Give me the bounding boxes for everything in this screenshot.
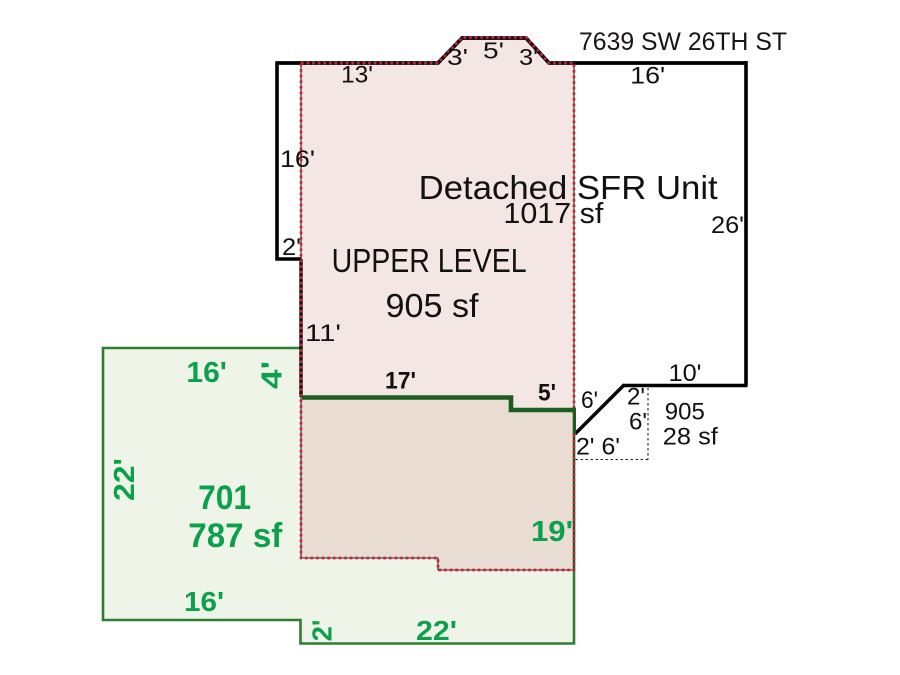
svg-text:2': 2' (282, 234, 301, 261)
svg-text:10': 10' (669, 360, 702, 387)
svg-text:16': 16' (186, 357, 227, 389)
svg-text:16': 16' (184, 586, 224, 617)
svg-text:17': 17' (385, 368, 416, 395)
svg-text:7639 SW 26TH ST: 7639 SW 26TH ST (579, 28, 787, 56)
svg-text:22': 22' (416, 615, 457, 646)
svg-text:905: 905 (665, 399, 705, 426)
svg-text:16': 16' (280, 146, 315, 173)
svg-text:3': 3' (447, 44, 468, 70)
svg-text:2': 2' (627, 384, 645, 411)
svg-text:2' 6': 2' 6' (576, 434, 620, 461)
svg-text:6': 6' (581, 387, 598, 414)
svg-text:22': 22' (109, 458, 141, 501)
svg-text:4': 4' (257, 361, 289, 389)
svg-text:UPPER LEVEL: UPPER LEVEL (332, 242, 527, 279)
svg-text:1017 sf: 1017 sf (503, 198, 604, 230)
svg-text:13': 13' (341, 62, 373, 89)
svg-text:5': 5' (483, 38, 504, 64)
svg-text:701: 701 (198, 479, 251, 517)
svg-text:11': 11' (305, 320, 341, 347)
svg-text:28 sf: 28 sf (663, 424, 718, 451)
svg-text:5': 5' (538, 380, 556, 407)
svg-text:905 sf: 905 sf (386, 287, 480, 324)
svg-text:787 sf: 787 sf (188, 517, 283, 555)
svg-text:2': 2' (307, 620, 338, 642)
svg-text:3': 3' (519, 44, 538, 70)
svg-text:6': 6' (629, 409, 647, 436)
svg-text:26': 26' (711, 212, 744, 239)
svg-text:19': 19' (531, 516, 573, 548)
svg-text:16': 16' (630, 63, 665, 90)
